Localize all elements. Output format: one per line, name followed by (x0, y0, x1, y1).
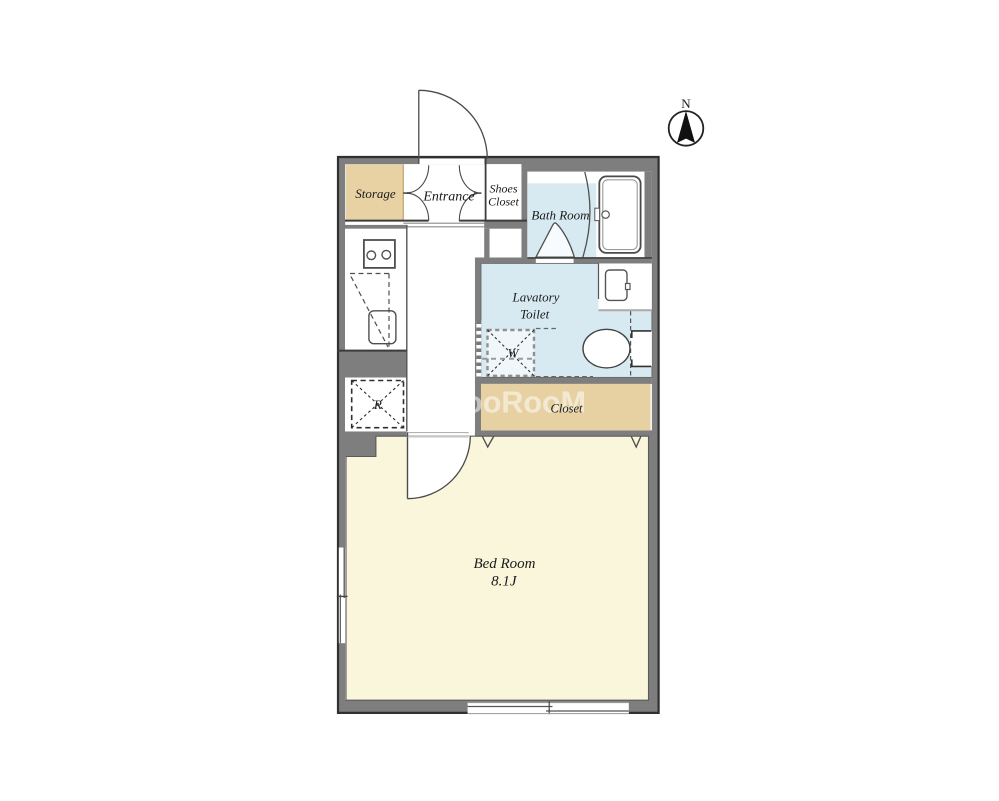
svg-text:Bed Room: Bed Room (473, 556, 535, 572)
svg-text:Bath Room: Bath Room (531, 208, 589, 223)
svg-text:Shoes: Shoes (490, 182, 518, 196)
svg-text:Closet: Closet (551, 402, 583, 416)
svg-text:Closet: Closet (488, 195, 519, 209)
svg-text:Toilet: Toilet (520, 307, 550, 322)
svg-text:Lavatory: Lavatory (512, 290, 560, 305)
svg-text:W: W (508, 346, 520, 361)
svg-text:R: R (373, 397, 382, 412)
svg-text:Entrance: Entrance (422, 190, 474, 205)
svg-text:N: N (681, 96, 691, 111)
svg-text:Storage: Storage (355, 186, 396, 201)
svg-text:8.1J: 8.1J (491, 574, 518, 590)
